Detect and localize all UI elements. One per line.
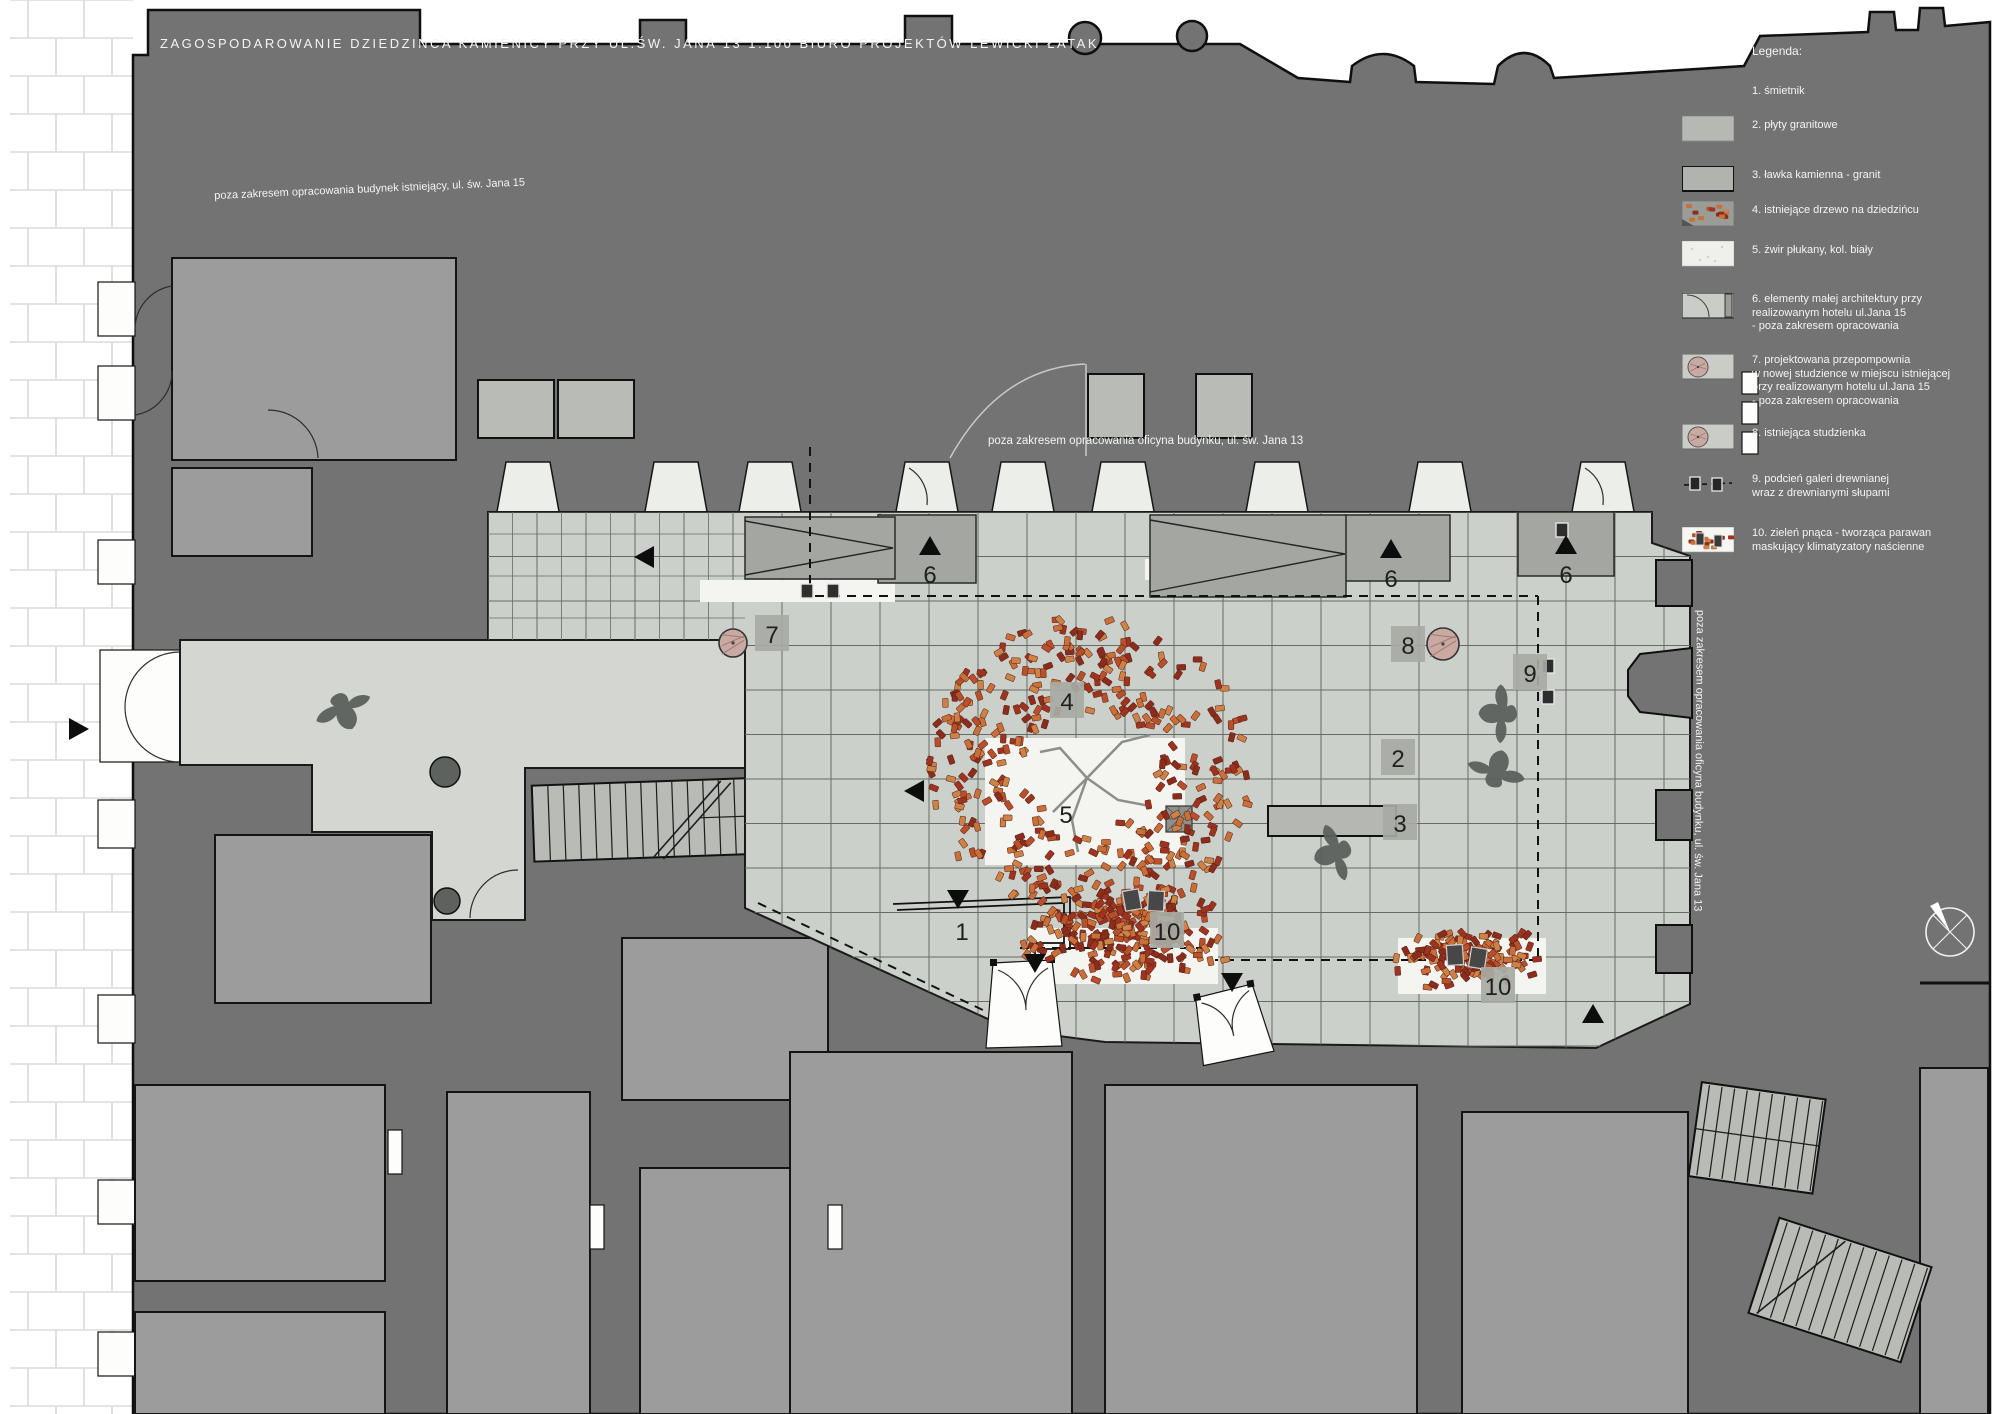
plan-marker-2: 2 xyxy=(1381,739,1415,775)
drawing-title: ZAGOSPODAROWANIE DZIEDZIŃCA KAMIENICY PR… xyxy=(160,36,1099,51)
ac-unit xyxy=(1469,947,1488,969)
legend-item-text: 4. istniejące drzewo na dziedzińcu xyxy=(1752,204,1919,218)
wooden-post xyxy=(801,584,813,598)
svg-text:9: 9 xyxy=(1523,661,1536,688)
ac-unit xyxy=(1122,889,1141,911)
svg-text:6: 6 xyxy=(1384,566,1397,593)
well-manhole xyxy=(434,888,460,914)
legend-item-2: 2. płyty granitowe xyxy=(1682,116,1838,142)
legend-item-text: 9. podcień galeri drewnianejwraz z drewn… xyxy=(1752,473,1890,500)
svg-text:10: 10 xyxy=(1485,974,1512,1001)
legend-item-5: 5. żwir płukany, kol. biały xyxy=(1682,241,1873,267)
wooden-post xyxy=(1542,690,1554,704)
svg-text:4: 4 xyxy=(1060,689,1073,716)
svg-text:10: 10 xyxy=(1154,919,1181,946)
wooden-post xyxy=(1556,523,1568,537)
legend-item-text: 1. śmietnik xyxy=(1752,85,1805,99)
ac-unit xyxy=(1147,891,1164,912)
svg-text:5: 5 xyxy=(1059,802,1072,829)
svg-text:3: 3 xyxy=(1393,811,1406,838)
legend-item-7: 7. projektowana przepompowniaw nowej stu… xyxy=(1682,354,1950,408)
legend-swatch-posts xyxy=(1682,473,1734,499)
legend-swatch-bench xyxy=(1682,166,1734,192)
well-manhole xyxy=(430,757,460,787)
legend-swatch-gravel xyxy=(1682,241,1734,267)
legend-swatch-tree xyxy=(1682,201,1734,227)
svg-text:7: 7 xyxy=(765,622,778,649)
legend-item-text: 3. ławka kamienna - granit xyxy=(1752,169,1880,183)
legend-item-text: 2. płyty granitowe xyxy=(1752,119,1838,133)
well-proposed xyxy=(719,629,747,657)
plan-marker-6: 6 xyxy=(1384,566,1397,593)
svg-text:6: 6 xyxy=(923,562,936,589)
plan-marker-10: 10 xyxy=(1481,967,1515,1003)
legend-item-text: 7. projektowana przepompowniaw nowej stu… xyxy=(1752,354,1950,408)
legend-item-10: 10. zieleń pnąca - tworząca parawanmasku… xyxy=(1682,527,1931,554)
plan-marker-6: 6 xyxy=(923,562,936,589)
west-gate xyxy=(100,650,180,762)
legend-heading: Legenda: xyxy=(1752,44,1802,58)
legend-item-8: 8. istniejąca studzienka xyxy=(1682,424,1866,450)
well-existing xyxy=(1427,628,1459,660)
svg-text:6: 6 xyxy=(1559,562,1572,589)
legend-swatch-vine xyxy=(1682,527,1734,553)
plan-marker-9: 9 xyxy=(1513,654,1547,690)
legend-item-6: 6. elementy małej architektury przyreali… xyxy=(1682,293,1922,334)
annotation-out-of-scope-oficyna-top: poza zakresem opracowania oficyna budynk… xyxy=(988,435,1303,447)
legend-swatch-granite xyxy=(1682,116,1734,142)
plan-marker-10: 10 xyxy=(1150,912,1184,948)
ac-unit xyxy=(1446,944,1463,965)
plan-marker-7: 7 xyxy=(755,615,789,651)
legend-swatch-none xyxy=(1682,85,1734,111)
south-entrance-1 xyxy=(986,956,1062,1048)
legend-item-1: 1. śmietnik xyxy=(1682,85,1805,111)
plan-marker-4: 4 xyxy=(1050,682,1084,718)
site-plan-canvas: 123456667891010 ZAGOSPODAROWANIE DZIEDZI… xyxy=(0,0,2000,1414)
legend-item-4: 4. istniejące drzewo na dziedzińcu xyxy=(1682,201,1919,227)
wooden-post xyxy=(827,584,839,598)
legend-item-text: 8. istniejąca studzienka xyxy=(1752,427,1866,441)
legend-item-text: 5. żwir płukany, kol. biały xyxy=(1752,244,1873,258)
legend-swatch-door xyxy=(1682,293,1734,319)
svg-text:1: 1 xyxy=(955,919,968,946)
legend-item-3: 3. ławka kamienna - granit xyxy=(1682,166,1880,192)
legend-item-9: 9. podcień galeri drewnianejwraz z drewn… xyxy=(1682,473,1890,500)
facade-dome-bump xyxy=(1177,21,1207,51)
plan-marker-3: 3 xyxy=(1383,804,1417,840)
legend-item-text: 10. zieleń pnąca - tworząca parawanmasku… xyxy=(1752,527,1931,554)
plan-marker-8: 8 xyxy=(1391,626,1425,662)
plan-marker-6: 6 xyxy=(1559,562,1572,589)
svg-text:8: 8 xyxy=(1401,633,1414,660)
plan-marker-5: 5 xyxy=(1059,802,1072,829)
legend-swatch-well xyxy=(1682,354,1734,380)
legend-swatch-well xyxy=(1682,424,1734,450)
plan-marker-1: 1 xyxy=(955,919,968,946)
svg-text:2: 2 xyxy=(1391,746,1404,773)
legend-item-text: 6. elementy małej architektury przyreali… xyxy=(1752,293,1922,334)
southeast-staircase-1 xyxy=(1689,1082,1826,1193)
